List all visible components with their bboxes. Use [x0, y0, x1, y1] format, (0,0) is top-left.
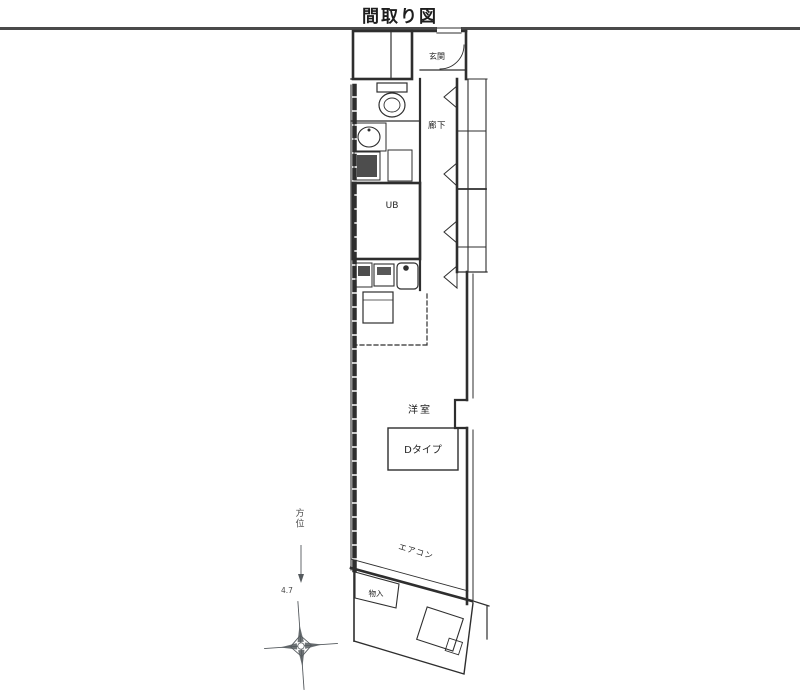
washbasin-area	[354, 123, 412, 181]
hallway: 廊下	[420, 79, 446, 183]
label-unit-bath: UB	[386, 201, 399, 211]
door-swing-triangle	[444, 86, 457, 108]
compass-rose-icon	[261, 599, 341, 693]
entrance-area: 玄関	[412, 25, 466, 79]
main-room: 洋室 Dタイプ エアコン	[351, 272, 473, 604]
direction-label: 方位	[295, 507, 304, 529]
wall-notch	[455, 400, 467, 428]
label-hallway: 廊下	[428, 120, 446, 131]
storage-closet: 物入	[355, 572, 399, 608]
door-swing-triangle	[444, 163, 457, 186]
laundry-pan	[417, 607, 464, 651]
door-swing-triangle	[444, 266, 457, 288]
corridor-strip	[444, 79, 487, 288]
dimension-text: 4.7	[281, 586, 293, 595]
north-annotation: 方位 4.7	[281, 507, 305, 595]
balcony	[354, 601, 489, 674]
floorplan-drawing: 玄関	[0, 0, 800, 693]
unit-bath-room: UB	[353, 183, 420, 259]
label-western-room: 洋室	[408, 403, 432, 416]
label-aircon: エアコン	[397, 542, 434, 561]
label-entrance: 玄関	[429, 51, 445, 61]
label-unit-type: Dタイプ	[404, 444, 442, 456]
meter-box	[353, 31, 412, 79]
label-storage: 物入	[369, 588, 384, 598]
ceiling-dashed-line	[356, 294, 427, 345]
floorplan-page: 間取り図 玄関	[0, 0, 800, 693]
toilet-tank	[377, 83, 407, 92]
toilet-room	[351, 79, 420, 121]
arrow-down-icon	[298, 574, 304, 583]
counter-unit	[363, 292, 393, 323]
faucet	[403, 265, 409, 271]
toilet-bowl	[379, 93, 405, 117]
door-swing-triangle	[444, 221, 457, 243]
bath-door	[388, 150, 412, 181]
